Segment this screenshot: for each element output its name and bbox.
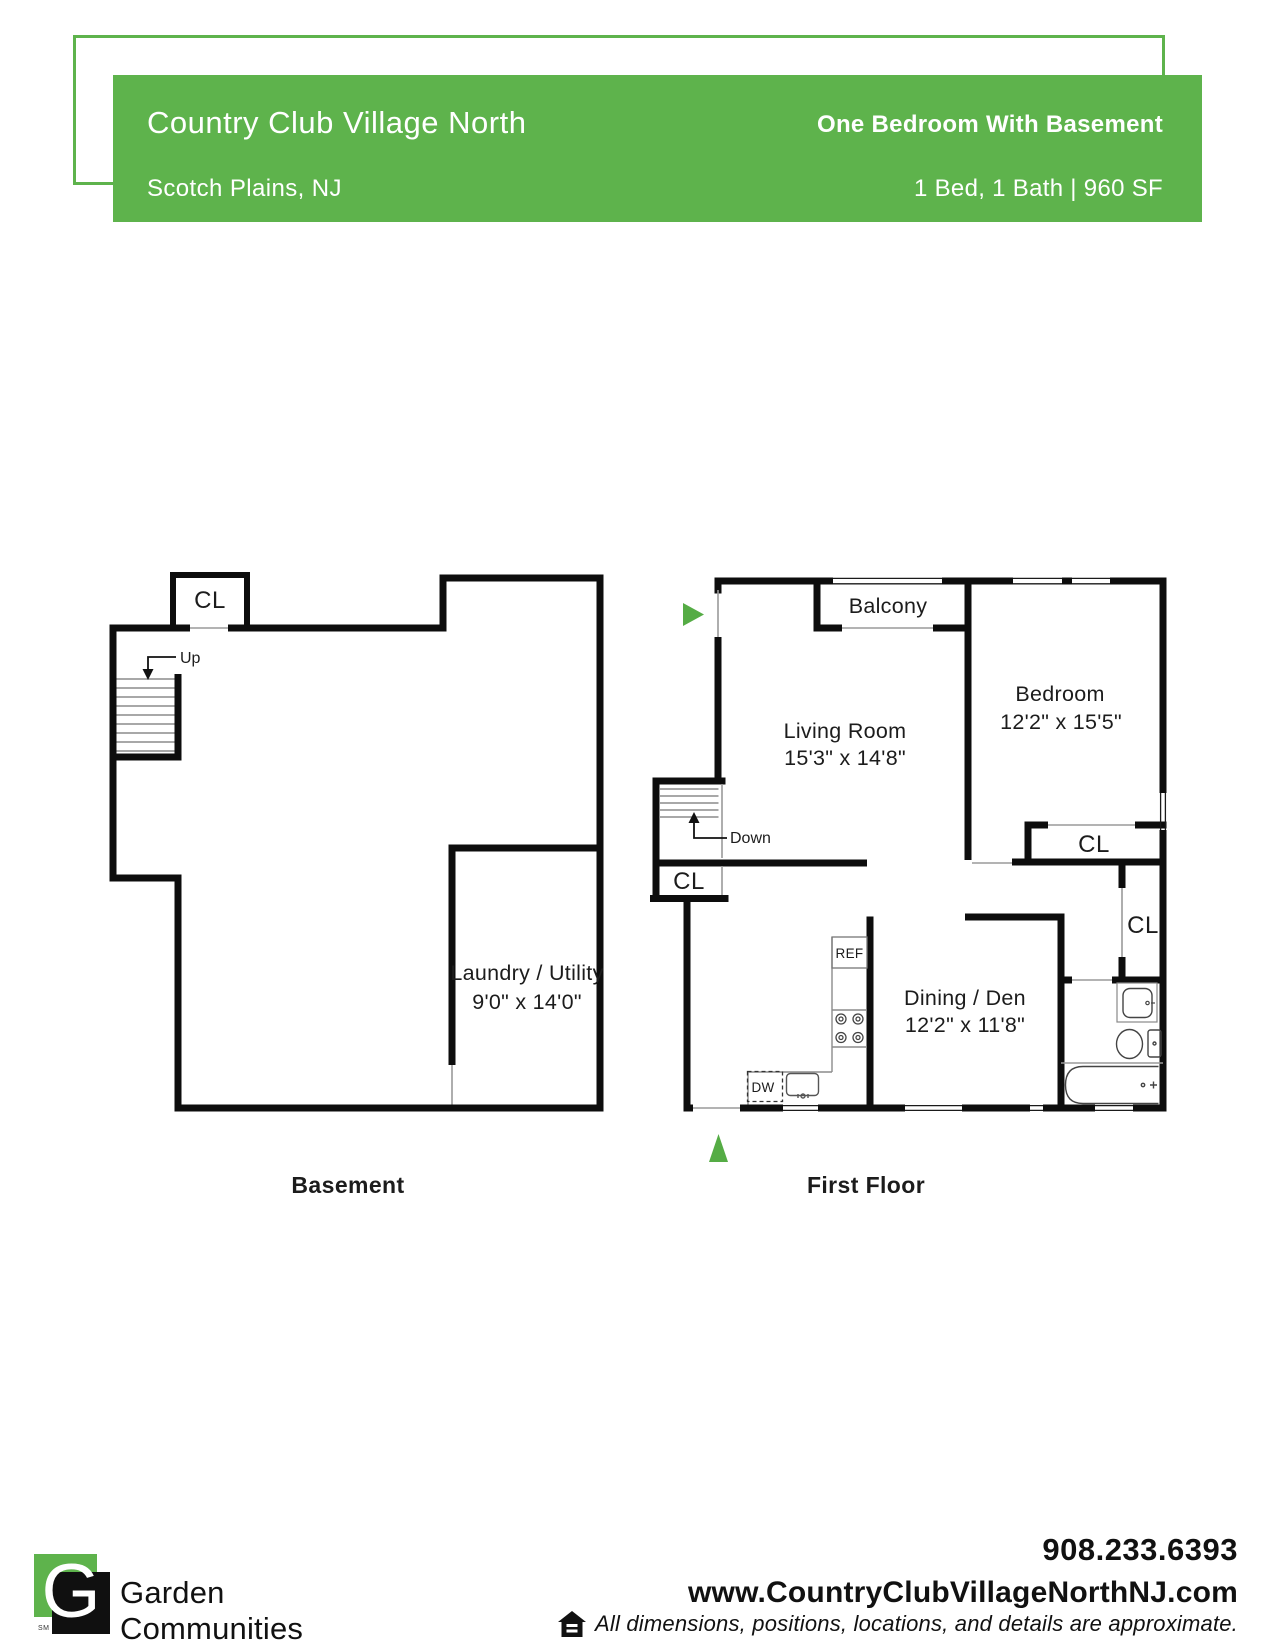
basement-door-openings	[190, 628, 452, 1105]
laundry-room-dimensions: 9'0" x 14'0"	[472, 990, 582, 1014]
company-name-line2: Communities	[120, 1613, 303, 1644]
basement-caption: Basement	[291, 1172, 404, 1198]
living-room-dimensions: 15'3" x 14'8"	[784, 746, 906, 770]
up-label: Up	[180, 650, 201, 667]
logo-letter: G	[38, 1550, 104, 1634]
dining-name: Dining / Den	[904, 986, 1026, 1010]
entry-closet-label: CL	[673, 868, 705, 895]
toilet	[1117, 1030, 1162, 1059]
floorplan-drawing: CL Up Laundry / Utility 9'0" x 14'0" Bas…	[0, 0, 1276, 1650]
entry-arrow-side	[683, 603, 704, 626]
basement-stair-treads	[117, 679, 175, 751]
website-url: www.CountryClubVillageNorthNJ.com	[688, 1578, 1238, 1608]
first-floor-caption: First Floor	[807, 1172, 925, 1198]
bedroom-dimensions: 12'2" x 15'5"	[1000, 710, 1122, 734]
basement-plan: CL Up Laundry / Utility 9'0" x 14'0" Bas…	[110, 572, 604, 1198]
stove-burners	[836, 1014, 863, 1043]
logo-sm-mark: SM	[38, 1625, 50, 1632]
bedroom-closet-label: CL	[1078, 831, 1110, 858]
basement-closet-label: CL	[194, 587, 226, 614]
disclaimer-text: All dimensions, positions, locations, an…	[595, 1611, 1238, 1637]
bathroom-sink	[1117, 983, 1157, 1022]
company-name-line1: Garden	[120, 1577, 225, 1608]
hall-closet-label: CL	[1127, 912, 1159, 939]
dining-dimensions: 12'2" x 11'8"	[905, 1013, 1025, 1037]
bathtub	[1066, 1067, 1159, 1104]
kitchen-sink	[787, 1074, 819, 1099]
balcony-label: Balcony	[849, 594, 928, 618]
bedroom-name: Bedroom	[1015, 682, 1104, 706]
up-arrow-line	[148, 657, 176, 669]
dishwasher-label: DW	[751, 1080, 774, 1095]
entry-arrow-bottom	[709, 1134, 728, 1162]
phone-number: 908.233.6393	[1042, 1534, 1238, 1565]
living-room-name: Living Room	[784, 719, 907, 743]
down-label: Down	[730, 830, 771, 847]
equal-housing-icon	[557, 1610, 587, 1638]
disclaimer-row: All dimensions, positions, locations, an…	[557, 1610, 1238, 1638]
laundry-room-name: Laundry / Utility	[450, 961, 603, 985]
first-floor-plan: Balcony Living Room 15'3" x 14'8" Bedroo…	[650, 578, 1167, 1199]
flyer-page: Country Club Village North Scotch Plains…	[0, 0, 1276, 1650]
refrigerator-label: REF	[836, 946, 864, 961]
first-floor-stair-treads	[660, 789, 719, 817]
